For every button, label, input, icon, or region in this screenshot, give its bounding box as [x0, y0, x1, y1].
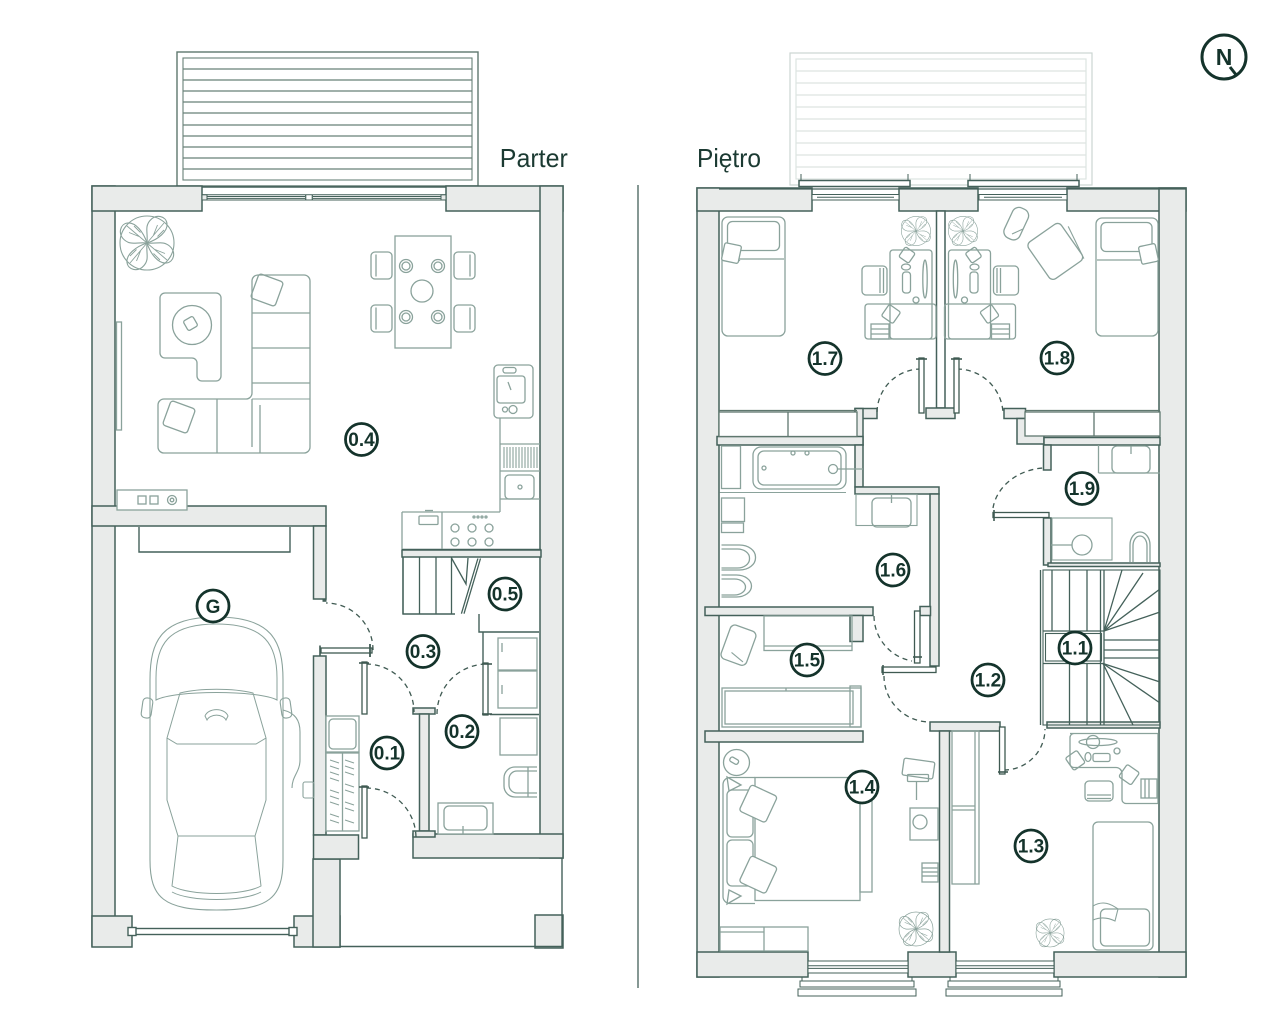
- svg-text:1.6: 1.6: [880, 561, 906, 582]
- svg-text:1.4: 1.4: [849, 778, 876, 799]
- svg-text:1.8: 1.8: [1044, 349, 1070, 370]
- svg-text:N: N: [1216, 44, 1233, 70]
- svg-text:1.5: 1.5: [794, 651, 821, 672]
- svg-text:Parter: Parter: [500, 143, 568, 173]
- svg-text:0.4: 0.4: [348, 430, 375, 451]
- svg-text:0.3: 0.3: [410, 642, 436, 663]
- svg-text:Piętro: Piętro: [697, 143, 761, 173]
- svg-text:0.5: 0.5: [492, 585, 519, 606]
- svg-text:1.3: 1.3: [1018, 837, 1044, 858]
- svg-text:1.2: 1.2: [975, 671, 1001, 692]
- svg-text:1.9: 1.9: [1069, 479, 1095, 500]
- svg-text:1.7: 1.7: [812, 349, 838, 370]
- svg-text:1.1: 1.1: [1062, 639, 1089, 660]
- svg-text:G: G: [206, 597, 221, 618]
- svg-text:0.1: 0.1: [374, 744, 401, 765]
- svg-text:0.2: 0.2: [449, 722, 475, 743]
